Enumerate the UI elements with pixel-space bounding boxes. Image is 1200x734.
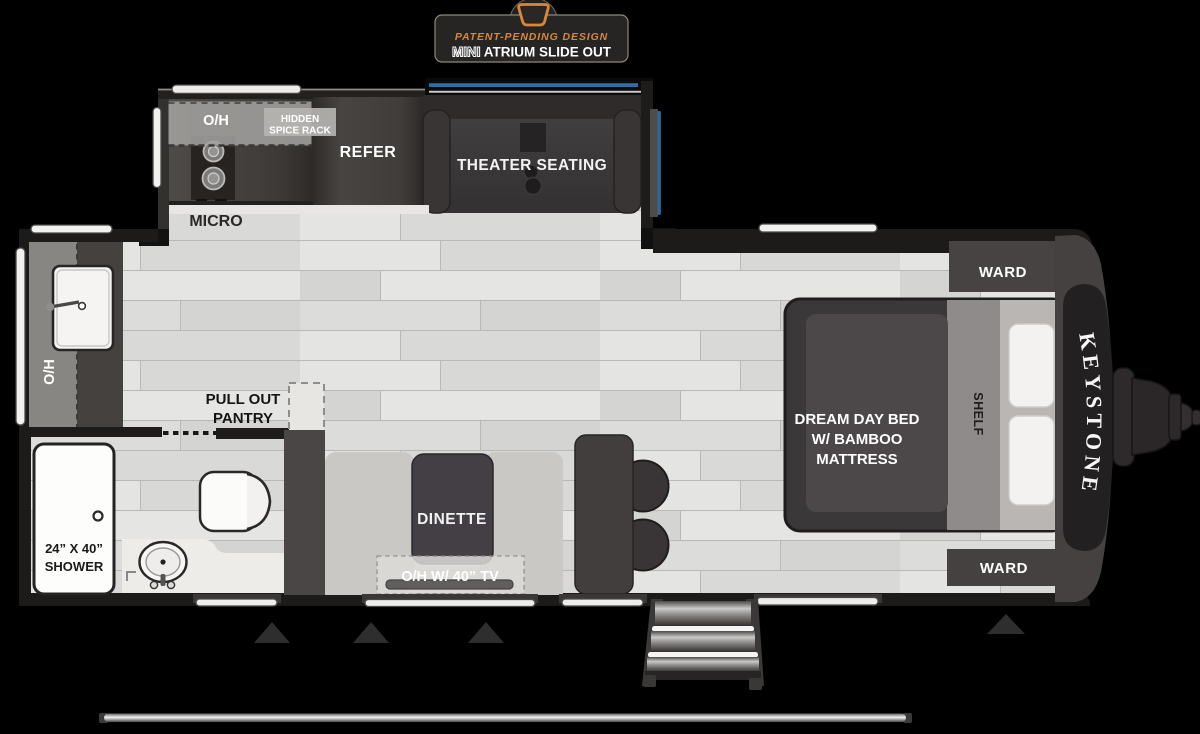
svg-text:PANTRY: PANTRY [213, 410, 273, 427]
svg-text:REFER: REFER [340, 144, 397, 161]
svg-text:SHELF: SHELF [971, 392, 985, 435]
svg-text:SHOWER: SHOWER [45, 559, 104, 574]
svg-text:HIDDEN: HIDDEN [281, 114, 319, 125]
svg-text:SPICE RACK: SPICE RACK [269, 126, 331, 137]
svg-text:PATENT-PENDING DESIGN: PATENT-PENDING DESIGN [455, 31, 608, 43]
svg-text:PULL OUT: PULL OUT [206, 391, 281, 408]
svg-text:W/ BAMBOO: W/ BAMBOO [812, 431, 903, 448]
svg-text:O/H W/ 40” TV: O/H W/ 40” TV [401, 569, 499, 585]
svg-text:MATTRESS: MATTRESS [816, 451, 897, 468]
svg-text:24” X 40”: 24” X 40” [45, 541, 103, 556]
svg-text:WARD: WARD [979, 264, 1027, 281]
svg-text:DREAM DAY BED: DREAM DAY BED [794, 411, 919, 428]
svg-text:THEATER SEATING: THEATER SEATING [457, 157, 607, 174]
svg-text:MINI ATRIUM SLIDE OUT: MINI ATRIUM SLIDE OUT [452, 45, 612, 60]
svg-text:MICRO: MICRO [189, 213, 242, 230]
svg-text:DINETTE: DINETTE [417, 511, 487, 528]
svg-text:WARD: WARD [980, 560, 1028, 577]
svg-text:O/H: O/H [42, 359, 58, 385]
svg-text:O/H: O/H [203, 113, 229, 129]
